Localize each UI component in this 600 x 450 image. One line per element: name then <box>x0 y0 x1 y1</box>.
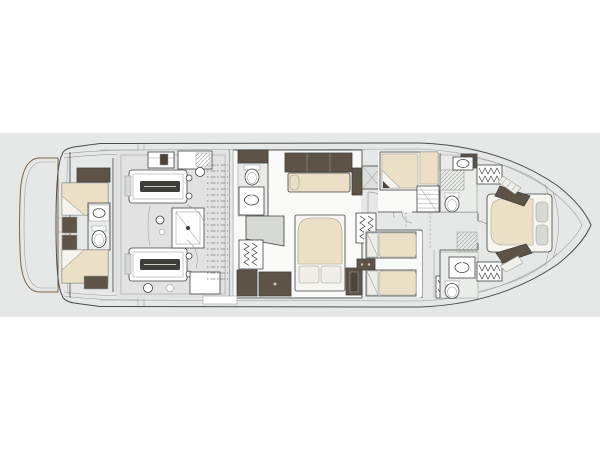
equipment-legend <box>207 164 228 284</box>
twin-bed-1 <box>366 232 416 258</box>
shower-icon <box>440 170 464 190</box>
pillow <box>536 202 548 222</box>
deck-step <box>203 296 237 304</box>
hanging-locker-bottom <box>477 262 502 281</box>
pillow <box>299 266 319 283</box>
crew-head <box>88 203 110 250</box>
crew-footlocker <box>84 276 108 289</box>
guest-cabin <box>378 151 440 212</box>
hanging-locker-top <box>477 165 502 184</box>
crew-seat <box>62 235 77 251</box>
berth-cushion <box>420 152 438 184</box>
staircase <box>417 186 439 212</box>
twin-bed-2 <box>366 270 416 296</box>
sink-icon <box>453 157 473 170</box>
nightstand <box>357 259 375 270</box>
master-bed <box>295 215 345 291</box>
sink-icon <box>239 187 264 215</box>
toilet-icon <box>445 281 459 299</box>
pillow <box>321 266 341 283</box>
fuel-tank <box>172 208 204 248</box>
sink-icon <box>449 257 475 278</box>
guest-bathroom-upper <box>440 153 477 212</box>
toilet-icon <box>92 226 106 248</box>
master-bathroom <box>238 150 268 216</box>
pump-icon <box>144 284 153 293</box>
master-wardrobe <box>239 240 263 269</box>
bath-cabinet <box>238 150 268 163</box>
engine-room <box>117 151 229 298</box>
toilet-icon <box>244 165 260 185</box>
engine-port <box>125 170 192 203</box>
shower-icon <box>457 232 477 252</box>
crew-seat <box>62 217 77 233</box>
yacht-floorplan-svg <box>0 0 600 450</box>
pillow <box>536 225 548 245</box>
pump-icon <box>156 216 164 224</box>
master-cabin <box>234 150 362 297</box>
toilet-icon <box>445 193 459 212</box>
crew-locker <box>77 168 110 182</box>
floorplan-stage <box>0 0 600 450</box>
engine-starboard <box>125 248 192 281</box>
dresser <box>237 270 257 296</box>
